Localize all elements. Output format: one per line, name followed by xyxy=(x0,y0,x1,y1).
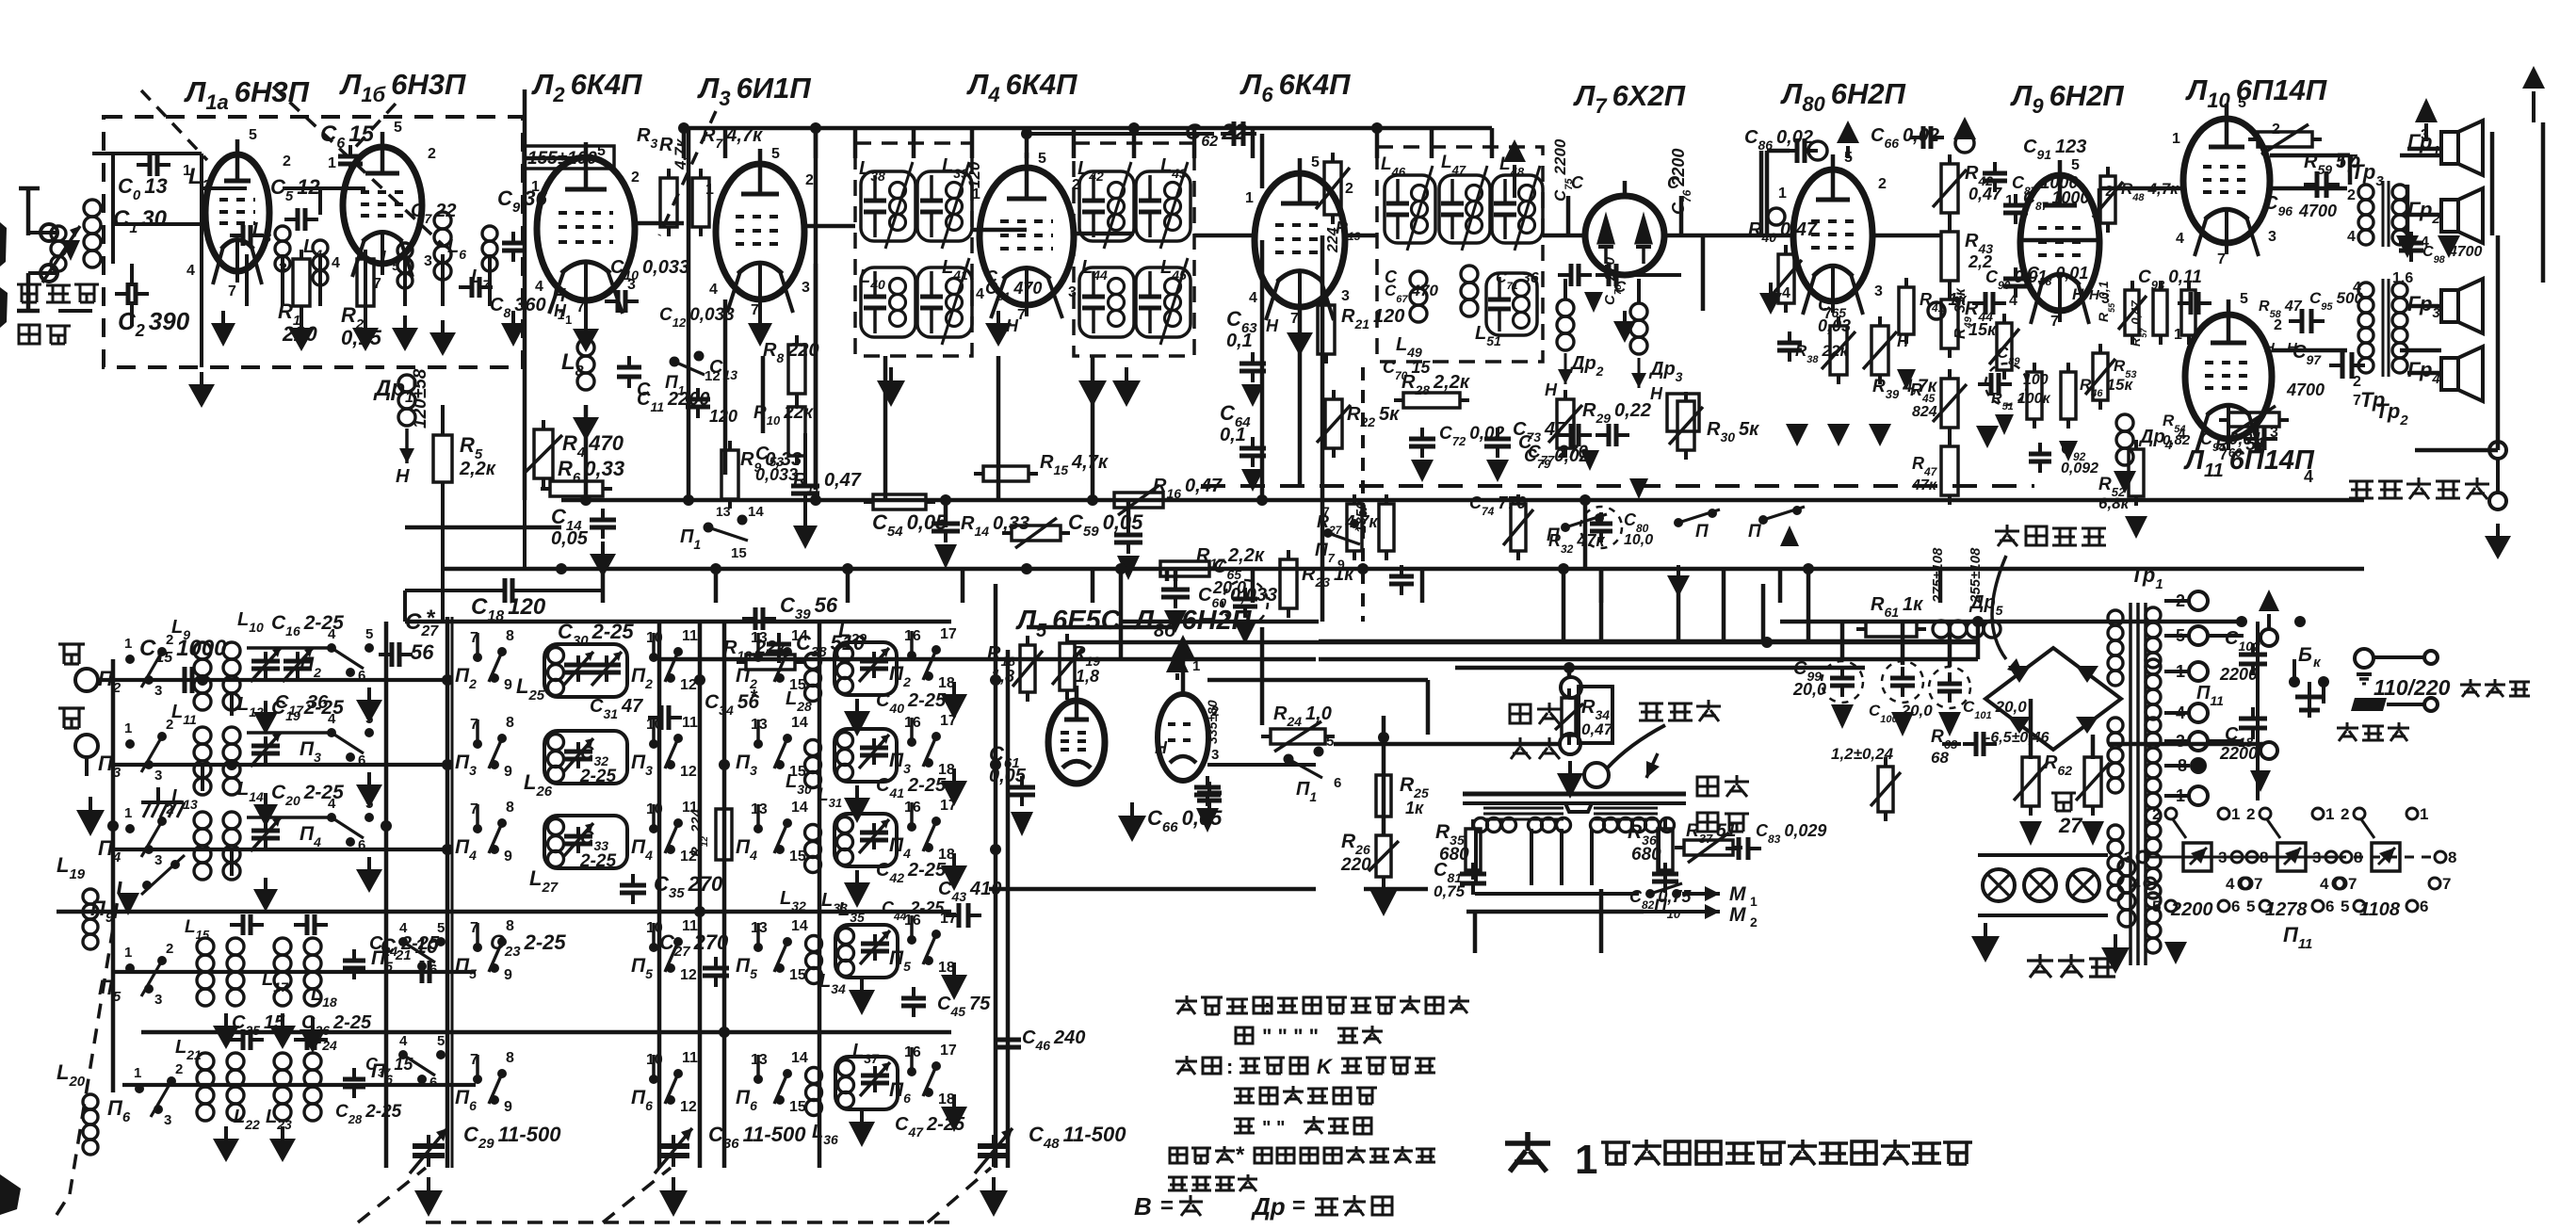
svg-text:L23: L23 xyxy=(266,1107,292,1132)
svg-text:0,092: 0,092 xyxy=(2061,461,2098,477)
svg-text:6: 6 xyxy=(2231,897,2240,915)
svg-text:6: 6 xyxy=(2420,897,2428,915)
svg-text:9: 9 xyxy=(504,1099,512,1115)
svg-text:=: = xyxy=(1292,1193,1305,1219)
svg-text:6: 6 xyxy=(429,1075,437,1091)
svg-text:6: 6 xyxy=(1334,775,1341,791)
svg-text:С282-25: С282-25 xyxy=(335,1102,402,1126)
svg-text:7: 7 xyxy=(1017,307,1026,323)
svg-text:П5: П5 xyxy=(736,955,757,981)
svg-text:335±80: 335±80 xyxy=(1205,700,1220,744)
svg-text:12: 12 xyxy=(680,967,697,983)
svg-text:П5: П5 xyxy=(889,947,911,974)
svg-text:4: 4 xyxy=(399,920,408,936)
svg-text:М: М xyxy=(1729,883,1746,905)
svg-text:7: 7 xyxy=(1290,311,1299,327)
svg-text:7: 7 xyxy=(751,302,759,318)
svg-text:3: 3 xyxy=(2270,425,2278,441)
svg-text:27: 27 xyxy=(2058,814,2083,837)
svg-text:*: * xyxy=(1236,1142,1245,1168)
svg-text:7: 7 xyxy=(1823,306,1832,322)
svg-text:Н: Н xyxy=(1897,332,1909,350)
svg-text:14: 14 xyxy=(748,504,764,520)
svg-text:7: 7 xyxy=(470,630,478,646)
svg-text:П3: П3 xyxy=(889,750,911,776)
svg-text:Н: Н xyxy=(1155,738,1168,757)
svg-text:П6: П6 xyxy=(107,1096,131,1125)
svg-text:275±108: 275±108 xyxy=(1930,547,1946,604)
svg-text:В: В xyxy=(1134,1192,1152,1221)
svg-text:4700: 4700 xyxy=(2298,202,2337,220)
svg-text:2: 2 xyxy=(1750,914,1758,930)
svg-text:1: 1 xyxy=(2420,805,2428,823)
svg-text:R241,0: R241,0 xyxy=(1273,703,1332,729)
svg-text:1: 1 xyxy=(2231,805,2240,823)
svg-text:1,8: 1,8 xyxy=(1076,667,1099,686)
svg-text:8: 8 xyxy=(1360,504,1368,519)
svg-text:1,6: 1,6 xyxy=(2392,270,2413,286)
svg-text:2: 2 xyxy=(2274,317,2282,333)
svg-text:С46240: С46240 xyxy=(1022,1027,1085,1053)
svg-text:П1: П1 xyxy=(1296,779,1317,804)
svg-text:3: 3 xyxy=(627,277,636,293)
svg-text:1: 1 xyxy=(1778,186,1787,202)
svg-text:3: 3 xyxy=(2101,291,2110,307)
svg-text:3: 3 xyxy=(154,852,162,868)
svg-text:П3: П3 xyxy=(736,752,757,778)
svg-text:С97: С97 xyxy=(2292,342,2322,367)
svg-text:1: 1 xyxy=(1750,894,1758,909)
svg-text:5: 5 xyxy=(437,1033,445,1049)
svg-text:7: 7 xyxy=(470,920,478,936)
svg-text:3: 3 xyxy=(2312,849,2321,866)
svg-text:13: 13 xyxy=(751,630,768,646)
svg-text:8: 8 xyxy=(506,918,514,934)
svg-text:3: 3 xyxy=(1211,747,1219,763)
svg-text:6: 6 xyxy=(429,962,437,978)
svg-text:7: 7 xyxy=(2050,314,2059,330)
svg-text:5: 5 xyxy=(394,120,402,136)
svg-text:П1: П1 xyxy=(680,526,701,552)
svg-text:-6,5±0,46: -6,5±0,46 xyxy=(1985,730,2049,746)
svg-text:17: 17 xyxy=(940,798,957,814)
svg-text:R74,7к: R74,7к xyxy=(702,125,763,151)
svg-text:7: 7 xyxy=(470,717,478,733)
svg-text:L27: L27 xyxy=(529,866,559,896)
svg-text:2: 2 xyxy=(805,172,814,188)
svg-text:П2: П2 xyxy=(455,665,477,691)
svg-text:1: 1 xyxy=(124,636,132,652)
svg-text:1: 1 xyxy=(124,945,132,961)
svg-text:3: 3 xyxy=(2218,849,2227,866)
svg-text:6,8к: 6,8к xyxy=(2098,494,2130,512)
svg-text:П6: П6 xyxy=(631,1087,653,1113)
svg-text:12: 12 xyxy=(680,764,697,780)
svg-text:П: П xyxy=(1695,522,1709,542)
svg-text:0,1: 0,1 xyxy=(1226,331,1253,351)
svg-text:11: 11 xyxy=(682,715,698,731)
svg-text:4: 4 xyxy=(535,279,543,295)
svg-text:С8360: С8360 xyxy=(490,295,546,320)
svg-text:R611к: R611к xyxy=(1871,594,1923,620)
svg-text:R305к: R305к xyxy=(1707,419,1759,445)
svg-text:12: 12 xyxy=(680,1099,697,1115)
svg-text:П6: П6 xyxy=(736,1087,757,1113)
svg-text:R3822к: R3822к xyxy=(1795,342,1849,365)
svg-text:1: 1 xyxy=(2005,193,2014,209)
svg-text:13: 13 xyxy=(751,801,768,817)
svg-text:L45: L45 xyxy=(1160,257,1187,283)
svg-text:6: 6 xyxy=(2325,897,2334,915)
svg-text:С4575: С4575 xyxy=(937,994,991,1019)
svg-text:5: 5 xyxy=(1311,154,1320,170)
svg-text:8: 8 xyxy=(506,628,514,644)
svg-text:П2: П2 xyxy=(889,663,911,689)
svg-text:4: 4 xyxy=(399,1033,408,1049)
svg-text:L11: L11 xyxy=(171,702,197,727)
svg-text:13: 13 xyxy=(716,504,731,519)
svg-text:2-25: 2-25 xyxy=(579,851,616,871)
svg-text:16: 16 xyxy=(904,628,921,644)
svg-text:17: 17 xyxy=(940,713,957,729)
svg-text:8: 8 xyxy=(2448,849,2456,866)
svg-text:3: 3 xyxy=(154,768,162,784)
svg-text:С472-25: С472-25 xyxy=(895,1114,965,1140)
svg-text:120: 120 xyxy=(965,161,983,188)
svg-text:С830,029: С830,029 xyxy=(1756,821,1826,846)
svg-text:Б: Б xyxy=(2298,644,2312,666)
svg-text:4: 4 xyxy=(2353,280,2361,296)
svg-text:3: 3 xyxy=(1874,283,1883,299)
svg-text:7: 7 xyxy=(2254,875,2262,893)
svg-text:5: 5 xyxy=(1326,734,1334,750)
svg-text:1: 1 xyxy=(124,805,132,821)
svg-text:8: 8 xyxy=(506,715,514,731)
svg-text:4: 4 xyxy=(2320,875,2329,893)
svg-text:14: 14 xyxy=(791,800,808,816)
svg-text:4: 4 xyxy=(976,286,984,302)
svg-text:5: 5 xyxy=(365,711,373,727)
svg-text:R140,33: R140,33 xyxy=(961,513,1029,539)
svg-text:Л806Н2П: Л806Н2П xyxy=(1780,77,1906,116)
svg-text:R225к: R225к xyxy=(1347,404,1400,429)
svg-text:9: 9 xyxy=(1337,557,1345,572)
svg-text:1278: 1278 xyxy=(2265,899,2308,920)
svg-text::: : xyxy=(1264,995,1271,1018)
svg-text:4: 4 xyxy=(332,255,340,271)
svg-text:5: 5 xyxy=(2238,95,2246,111)
svg-text:824: 824 xyxy=(1912,404,1937,420)
svg-text:7: 7 xyxy=(2348,875,2357,893)
svg-text:С2390: С2390 xyxy=(118,307,190,340)
svg-text:4: 4 xyxy=(2226,875,2235,893)
svg-text:13: 13 xyxy=(751,920,768,936)
svg-text:14: 14 xyxy=(791,918,808,934)
svg-text:Л1а6Н3П: Л1а6Н3П xyxy=(184,75,310,114)
svg-text:Н: Н xyxy=(396,466,410,487)
svg-text:С89: С89 xyxy=(1997,344,2020,367)
svg-text:1: 1 xyxy=(1245,190,1254,206)
svg-text:2: 2 xyxy=(631,170,640,186)
svg-text:14: 14 xyxy=(791,1050,808,1066)
svg-text:2: 2 xyxy=(2347,187,2356,203)
svg-text:R154,7к: R154,7к xyxy=(1040,452,1109,477)
svg-text:11: 11 xyxy=(682,918,698,934)
svg-text:9: 9 xyxy=(504,677,512,693)
svg-text:4: 4 xyxy=(1249,290,1257,306)
svg-text:R36: R36 xyxy=(1628,821,1657,848)
svg-text:1: 1 xyxy=(183,163,191,179)
svg-text:7: 7 xyxy=(228,283,236,299)
svg-text:R21120: R21120 xyxy=(1341,306,1404,332)
svg-text:2: 2 xyxy=(428,146,436,162)
svg-text:С013: С013 xyxy=(118,174,168,203)
svg-text:R8220: R8220 xyxy=(763,340,819,365)
svg-text:С102: С102 xyxy=(2225,628,2260,654)
svg-text:С43410: С43410 xyxy=(938,879,1001,904)
svg-text:2: 2 xyxy=(2152,805,2161,823)
svg-text:С3956: С3956 xyxy=(780,593,838,623)
svg-text:Др: Др xyxy=(1251,1192,1286,1221)
svg-text:" " " ": " " " " xyxy=(1262,1025,1319,1048)
svg-text:П4: П4 xyxy=(889,834,911,861)
svg-text:1к: 1к xyxy=(1405,799,1424,817)
svg-text:2200: 2200 xyxy=(2219,744,2258,763)
svg-text:16: 16 xyxy=(904,1044,921,1060)
svg-text:2: 2 xyxy=(283,154,291,170)
svg-text:7: 7 xyxy=(373,276,381,292)
svg-text:4: 4 xyxy=(186,263,195,279)
svg-text:K: K xyxy=(1317,1055,1334,1078)
svg-text:20,0: 20,0 xyxy=(1792,680,1826,699)
svg-text:5: 5 xyxy=(365,796,373,812)
svg-text:47к: 47к xyxy=(1911,477,1937,493)
svg-text:8: 8 xyxy=(506,1050,514,1066)
svg-text:L15: L15 xyxy=(185,917,210,942)
svg-text:L44: L44 xyxy=(1081,257,1108,283)
svg-text:0,1: 0,1 xyxy=(1220,425,1246,445)
svg-text:П3: П3 xyxy=(300,738,321,765)
svg-text:1: 1 xyxy=(972,186,980,202)
svg-text:R47: R47 xyxy=(1912,454,1938,478)
svg-text:8: 8 xyxy=(506,800,514,816)
svg-text:15: 15 xyxy=(731,545,747,561)
svg-text:С930,11: С930,11 xyxy=(2138,267,2202,292)
svg-text:2: 2 xyxy=(175,1061,183,1077)
svg-text:L36: L36 xyxy=(812,1122,838,1147)
svg-text:5: 5 xyxy=(437,920,445,936)
svg-text:9: 9 xyxy=(504,849,512,865)
svg-text:1: 1 xyxy=(2325,805,2334,823)
svg-text:3: 3 xyxy=(164,1112,171,1128)
svg-text:4: 4 xyxy=(2178,427,2186,443)
svg-text:*: * xyxy=(750,687,758,707)
svg-text:0,47: 0,47 xyxy=(1968,185,2002,203)
svg-text:3: 3 xyxy=(154,992,162,1008)
svg-text:R34: R34 xyxy=(1581,697,1610,722)
svg-text:L40: L40 xyxy=(859,267,885,292)
svg-text:16: 16 xyxy=(904,800,921,816)
svg-text:R25: R25 xyxy=(1400,774,1429,800)
svg-text:3: 3 xyxy=(1341,288,1350,304)
svg-text:20,0: 20,0 xyxy=(1212,578,1246,597)
svg-text:3: 3 xyxy=(279,261,287,277)
svg-text:4: 4 xyxy=(2304,467,2313,486)
svg-text:L14: L14 xyxy=(237,779,264,804)
svg-text:" ": " " xyxy=(1262,1118,1286,1139)
svg-text:2: 2 xyxy=(2353,374,2361,390)
svg-text:М: М xyxy=(1729,904,1746,926)
svg-text:0,82: 0,82 xyxy=(2163,432,2191,448)
svg-text:4: 4 xyxy=(328,796,336,812)
svg-text:Н: Н xyxy=(2264,340,2276,356)
svg-text:Н: Н xyxy=(2072,285,2084,303)
svg-text:224: 224 xyxy=(1325,227,1341,253)
svg-text:С422-25: С422-25 xyxy=(876,860,947,885)
svg-text:1: 1 xyxy=(2172,131,2180,147)
svg-text:П: П xyxy=(1748,522,1761,542)
svg-text:3: 3 xyxy=(154,683,162,699)
svg-text:5: 5 xyxy=(2246,897,2255,915)
svg-text:3: 3 xyxy=(1068,284,1077,300)
svg-text:2200: 2200 xyxy=(2170,899,2213,920)
svg-text:L25: L25 xyxy=(516,674,545,703)
svg-text:10,0: 10,0 xyxy=(1624,532,1653,548)
svg-text:1: 1 xyxy=(565,313,572,327)
svg-text:14: 14 xyxy=(791,715,808,731)
svg-text:13: 13 xyxy=(751,1052,768,1068)
svg-text:L41: L41 xyxy=(942,257,968,283)
svg-text:1: 1 xyxy=(705,182,714,198)
svg-text:R3: R3 xyxy=(637,125,657,151)
svg-text:L49: L49 xyxy=(1396,334,1422,360)
svg-text:17: 17 xyxy=(940,1043,957,1059)
svg-text:2: 2 xyxy=(2246,805,2255,823)
svg-text:L43: L43 xyxy=(1160,155,1187,181)
svg-text:7: 7 xyxy=(1322,504,1330,519)
svg-text:С33: С33 xyxy=(580,828,608,853)
svg-text:7: 7 xyxy=(2442,875,2451,893)
svg-text:П4: П4 xyxy=(300,823,321,849)
svg-text:Л1б6Н3П: Л1б6Н3П xyxy=(339,68,466,106)
svg-text::: : xyxy=(1226,1055,1233,1078)
svg-text:С402-25: С402-25 xyxy=(876,690,947,716)
svg-text:2: 2 xyxy=(1345,181,1353,197)
svg-text:4: 4 xyxy=(709,282,718,298)
svg-text:П11: П11 xyxy=(2283,923,2312,952)
svg-text:2: 2 xyxy=(2272,121,2280,137)
svg-text:С412-25: С412-25 xyxy=(876,775,947,800)
svg-text:П7: П7 xyxy=(1315,541,1336,565)
svg-text:4: 4 xyxy=(328,626,336,642)
svg-text:3: 3 xyxy=(2124,849,2132,866)
svg-text:П4: П4 xyxy=(631,836,653,863)
svg-text:56: 56 xyxy=(411,640,434,664)
svg-text:4: 4 xyxy=(1782,285,1790,301)
svg-text:7: 7 xyxy=(576,299,585,315)
svg-text:4: 4 xyxy=(2421,234,2429,251)
svg-text:R35: R35 xyxy=(1435,821,1465,848)
svg-text:L21: L21 xyxy=(175,1037,202,1062)
svg-text:0,033: 0,033 xyxy=(755,465,798,484)
svg-text:П5: П5 xyxy=(455,955,477,981)
svg-text:5: 5 xyxy=(249,127,257,143)
svg-text:Л46К4П: Л46К4П xyxy=(966,68,1077,106)
svg-text:5: 5 xyxy=(1038,151,1046,167)
svg-text:4: 4 xyxy=(2176,231,2184,247)
svg-text:9: 9 xyxy=(504,764,512,780)
svg-text:П5: П5 xyxy=(631,955,653,981)
svg-text:Л26К4П: Л26К4П xyxy=(531,68,642,106)
svg-text:255±108: 255±108 xyxy=(1968,547,1984,604)
svg-text:С2911-500: С2911-500 xyxy=(463,1123,561,1152)
svg-text:L10: L10 xyxy=(237,609,264,635)
svg-text:5: 5 xyxy=(2240,291,2248,307)
svg-text:11: 11 xyxy=(682,1050,698,1066)
svg-text:11: 11 xyxy=(682,628,698,644)
svg-text:L20: L20 xyxy=(57,1060,86,1090)
svg-text:15: 15 xyxy=(789,1099,806,1115)
svg-text:L37: L37 xyxy=(852,1041,880,1066)
svg-text:С3147: С3147 xyxy=(590,696,643,721)
svg-text:7: 7 xyxy=(470,801,478,817)
svg-text:1: 1 xyxy=(328,155,336,171)
svg-text:2,2к: 2,2к xyxy=(459,459,496,479)
svg-text:14: 14 xyxy=(791,628,808,644)
svg-text:9: 9 xyxy=(504,967,512,983)
svg-text:С4811-500: С4811-500 xyxy=(1029,1123,1126,1152)
svg-text:5: 5 xyxy=(365,626,373,642)
svg-text:Тр2: Тр2 xyxy=(2375,399,2408,429)
svg-text:1: 1 xyxy=(124,720,132,736)
svg-text:17: 17 xyxy=(940,626,957,642)
svg-text:120±58: 120±58 xyxy=(411,368,430,429)
svg-text:С130: С130 xyxy=(113,206,168,236)
svg-text:П4: П4 xyxy=(736,836,757,863)
svg-text:Гр2: Гр2 xyxy=(2407,198,2440,227)
svg-text:Др2: Др2 xyxy=(1569,353,1604,379)
svg-text:0,47: 0,47 xyxy=(1581,720,1614,738)
svg-text:2: 2 xyxy=(2341,805,2349,823)
svg-text:4700: 4700 xyxy=(2286,380,2325,399)
svg-text:68: 68 xyxy=(1931,749,1949,767)
svg-text:R26: R26 xyxy=(1341,831,1370,857)
svg-text:110/220: 110/220 xyxy=(2373,675,2451,700)
svg-text:=: = xyxy=(1160,1193,1174,1219)
svg-text:L47: L47 xyxy=(1441,153,1466,177)
svg-text:Л96Н2П: Л96Н2П xyxy=(2010,79,2124,118)
svg-text:2: 2 xyxy=(2105,184,2114,200)
svg-text:R62: R62 xyxy=(2044,752,2072,778)
svg-text:1: 1 xyxy=(1575,1137,1597,1183)
svg-text:1: 1 xyxy=(531,179,540,195)
svg-text:2-25: 2-25 xyxy=(579,767,616,786)
svg-text:L12: L12 xyxy=(237,694,264,720)
svg-text:5: 5 xyxy=(1844,150,1853,166)
svg-text:2: 2 xyxy=(1878,176,1887,192)
svg-text:Л106П14П: Л106П14П xyxy=(2185,73,2327,112)
svg-text:П2: П2 xyxy=(300,654,321,680)
svg-text:4: 4 xyxy=(2009,293,2017,309)
svg-text:1108: 1108 xyxy=(2359,899,2401,920)
svg-text:Др1: Др1 xyxy=(373,376,413,406)
svg-text:7: 7 xyxy=(2219,447,2228,463)
svg-text:3: 3 xyxy=(802,280,810,296)
svg-text:3: 3 xyxy=(424,253,432,269)
svg-text:Л76Х2П: Л76Х2П xyxy=(1573,79,1686,118)
svg-text:П6: П6 xyxy=(889,1079,911,1106)
svg-text:5: 5 xyxy=(597,143,606,159)
